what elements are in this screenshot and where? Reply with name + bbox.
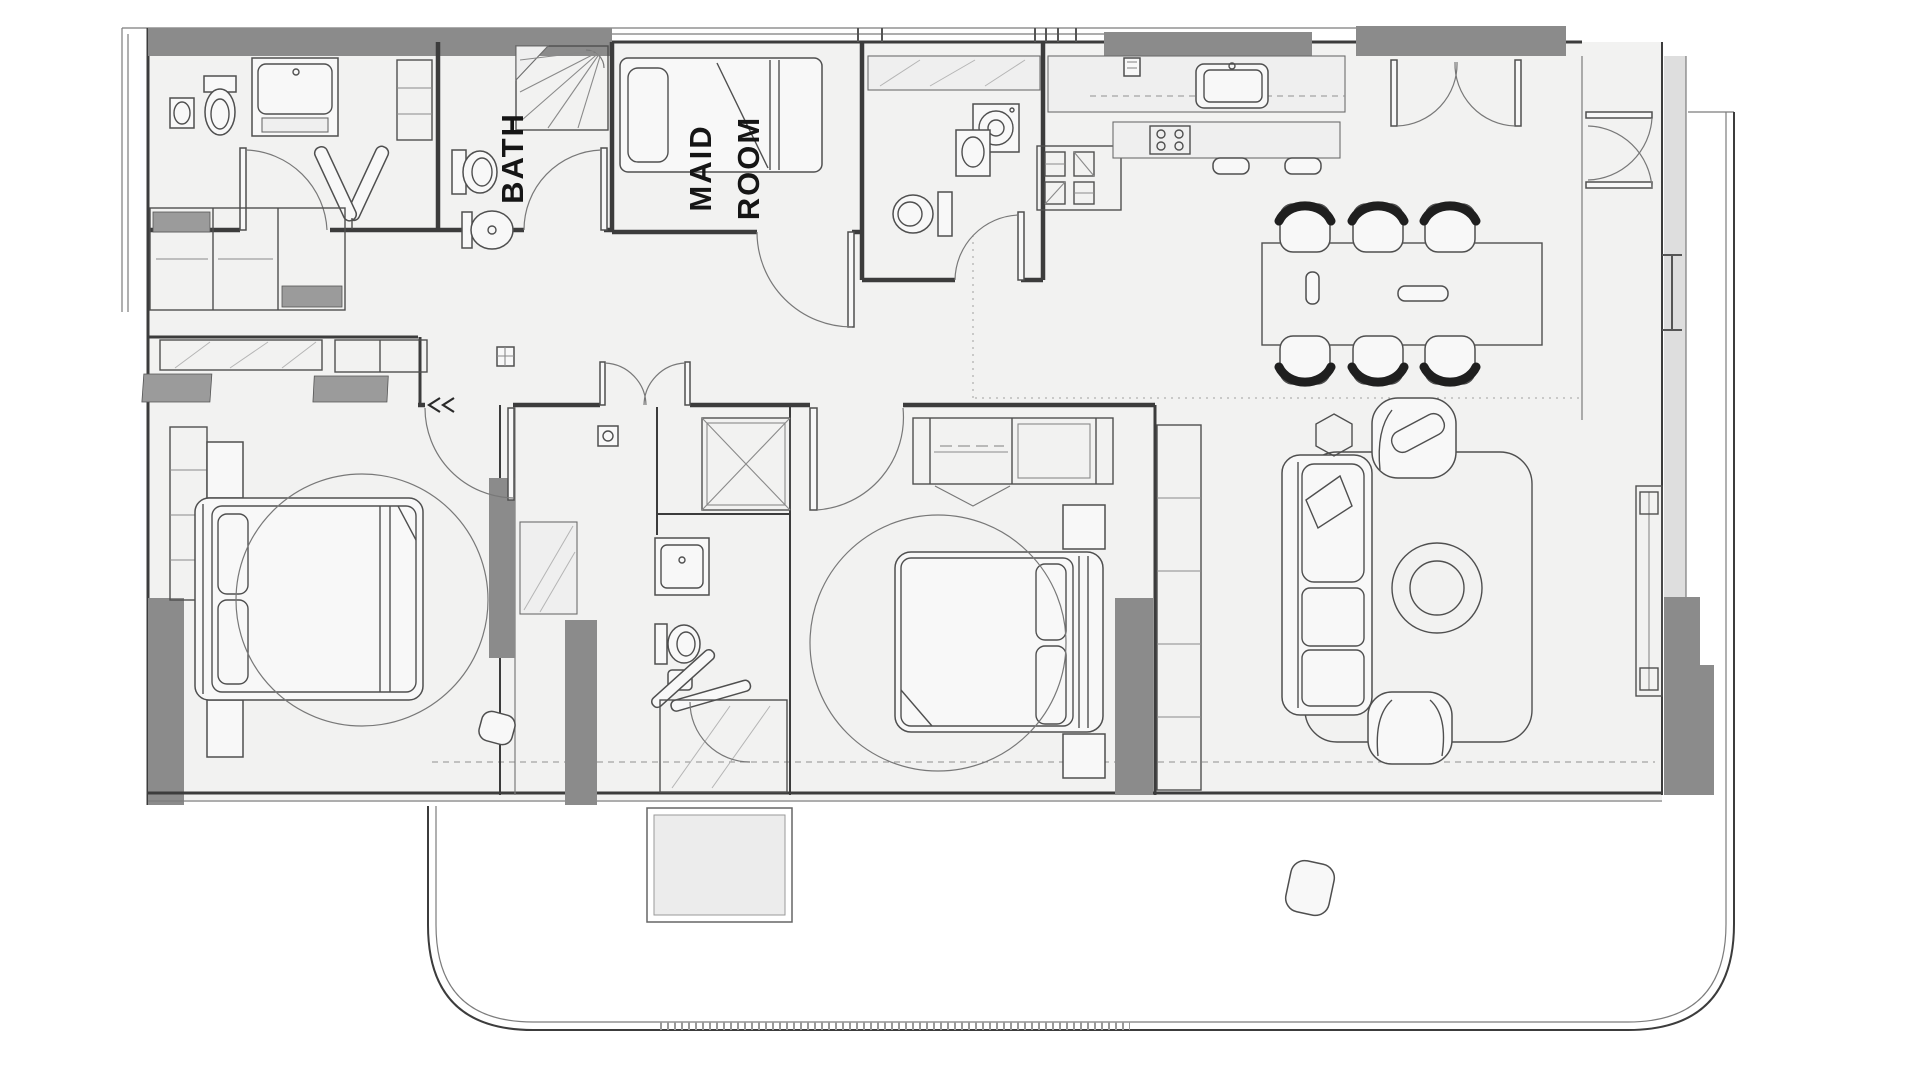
nightstand (1063, 734, 1105, 778)
dining-chair (1279, 204, 1331, 252)
vanity-sink (655, 538, 709, 595)
entry-nook-floor (1582, 56, 1662, 420)
toilet (655, 624, 700, 664)
wall-right-lower (1664, 597, 1700, 795)
window-mullion-ticks (858, 28, 1076, 42)
kitchen-counter (1048, 56, 1345, 112)
dining-chair (1352, 204, 1404, 252)
washbasin (598, 426, 618, 446)
shower (520, 522, 577, 614)
dining-chair (1424, 204, 1476, 252)
wall-left-lower (148, 598, 184, 805)
wall-pier-b (565, 620, 597, 805)
nightstand (1063, 505, 1105, 549)
armchair-with-bag (1372, 398, 1456, 478)
nightstand (207, 442, 243, 498)
floor-plan: BATH MAID ROOM (0, 0, 1920, 1080)
wall-top-mid (1104, 32, 1312, 58)
balcony-stool (1283, 858, 1337, 918)
pedestal-basin (462, 211, 513, 249)
planter-box (647, 808, 792, 922)
armchair (1368, 692, 1452, 764)
maid-room-label-line2: ROOM (731, 116, 766, 220)
wall-hung-basin (170, 98, 194, 128)
wall-pier-c (1115, 598, 1153, 795)
sofa (1282, 455, 1372, 715)
dining-chair (1352, 336, 1404, 384)
dining-chair (1279, 336, 1331, 384)
wall-right-glass (1664, 56, 1686, 597)
dining-chair (1424, 336, 1476, 384)
toilet (204, 76, 236, 135)
toilet (452, 150, 497, 194)
double-bed (195, 498, 423, 700)
bar-stool (1213, 158, 1249, 174)
double-bed (895, 552, 1103, 732)
wall-switch (1124, 58, 1140, 76)
nightstand (207, 700, 243, 757)
washbasin (956, 130, 990, 176)
toilet (893, 192, 952, 236)
vanity-sink (252, 58, 338, 136)
wall-pier-a (489, 478, 515, 658)
bath-label: BATH (495, 112, 530, 204)
wall-right-step (1700, 665, 1714, 795)
single-bed (620, 58, 822, 172)
maid-room-label-line1: MAID (683, 124, 718, 211)
bar-stool (1285, 158, 1321, 174)
shower-ledge (868, 56, 1040, 90)
wall-cabinet-marker (497, 347, 514, 366)
wall-top-right (1356, 26, 1566, 56)
